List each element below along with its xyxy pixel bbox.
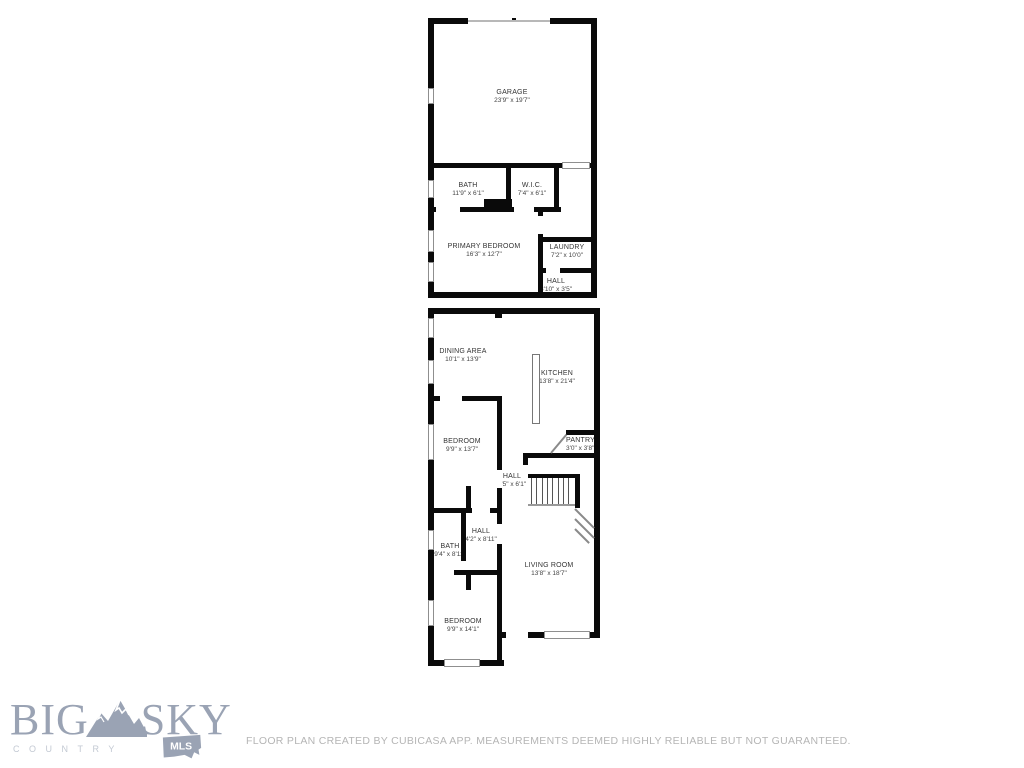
door-opening bbox=[436, 207, 460, 212]
logo-word-big: BIG bbox=[10, 698, 89, 742]
door-opening bbox=[440, 396, 462, 401]
stair-tread-line bbox=[552, 478, 553, 504]
window bbox=[444, 659, 480, 667]
svg-text:MLS: MLS bbox=[170, 742, 192, 753]
room-dims: 23'9" x 19'7" bbox=[467, 97, 557, 105]
room-name: W.I.C. bbox=[487, 181, 577, 190]
wall bbox=[523, 453, 528, 465]
room-name: KITCHEN bbox=[512, 369, 602, 378]
wall bbox=[495, 308, 502, 318]
room-label-living-room: LIVING ROOM 13'8" x 18'7" bbox=[504, 561, 594, 579]
logo-tagline: COUNTRY bbox=[13, 744, 124, 754]
room-dims: 7'2" x 10'0" bbox=[522, 252, 612, 260]
door-opening bbox=[472, 508, 490, 513]
door-opening bbox=[514, 207, 534, 212]
room-dims: 9'5" x 6'1" bbox=[467, 481, 557, 489]
room-name: PRIMARY BEDROOM bbox=[439, 242, 529, 251]
door-opening bbox=[538, 216, 543, 234]
room-name: LIVING ROOM bbox=[504, 561, 594, 570]
kitchen-island bbox=[532, 354, 540, 424]
pantry-door-line bbox=[550, 434, 567, 454]
window bbox=[428, 360, 434, 384]
room-label-primary-bedroom: PRIMARY BEDROOM 16'3" x 12'7" bbox=[439, 242, 529, 260]
mls-montana-badge: MLS bbox=[162, 734, 202, 761]
stair-winder-line bbox=[574, 508, 595, 529]
wall bbox=[428, 292, 597, 298]
door-opening bbox=[506, 632, 528, 638]
stair-tread-line bbox=[558, 478, 559, 504]
wall bbox=[428, 308, 600, 314]
window bbox=[428, 530, 434, 550]
wall bbox=[554, 163, 559, 212]
door-opening bbox=[434, 570, 454, 575]
room-label-kitchen: KITCHEN 13'8" x 21'4" bbox=[512, 369, 602, 387]
door-opening bbox=[546, 268, 560, 273]
room-label-laundry: LAUNDRY 7'2" x 10'0" bbox=[522, 243, 612, 261]
window bbox=[544, 631, 590, 639]
room-name: HALL bbox=[511, 277, 601, 286]
stair-tread-line bbox=[536, 478, 537, 504]
disclaimer-text: FLOOR PLAN CREATED BY CUBICASA APP. MEAS… bbox=[246, 735, 851, 747]
room-label-bath-lower: BATH 9'4" x 8'11" bbox=[405, 542, 495, 560]
room-label-garage: GARAGE 23'9" x 19'7" bbox=[467, 88, 557, 106]
stair-tread-line bbox=[542, 478, 543, 504]
room-dims: 16'3" x 12'7" bbox=[439, 251, 529, 259]
window bbox=[428, 262, 434, 282]
window bbox=[428, 424, 434, 460]
stair-edge-line bbox=[528, 504, 575, 506]
wall bbox=[461, 513, 466, 561]
wall bbox=[428, 18, 434, 298]
window bbox=[428, 600, 434, 626]
window bbox=[428, 318, 434, 338]
stair-tread-line bbox=[568, 478, 569, 504]
garage-door-line bbox=[468, 20, 550, 22]
floor-plan: GARAGE 23'9" x 19'7" BATH 11'9" x 6'1" W… bbox=[0, 0, 1024, 768]
wall bbox=[466, 486, 471, 508]
room-name: HALL bbox=[436, 527, 526, 536]
room-label-wic: W.I.C. 7'4" x 6'1" bbox=[487, 181, 577, 199]
room-name: LAUNDRY bbox=[522, 243, 612, 252]
wall bbox=[523, 453, 594, 458]
stair-tread-line bbox=[547, 478, 548, 504]
room-dims: 13'8" x 18'7" bbox=[504, 570, 594, 578]
room-dims: 7'4" x 6'1" bbox=[487, 190, 577, 198]
room-name: GARAGE bbox=[467, 88, 557, 97]
wall bbox=[575, 474, 580, 508]
wall bbox=[428, 18, 468, 24]
window bbox=[428, 180, 434, 198]
wall bbox=[591, 18, 597, 298]
big-sky-mls-logo: BIG SKY COUNTRY MLS bbox=[10, 698, 220, 762]
room-dims: 13'8" x 21'4" bbox=[512, 378, 602, 386]
door-opening bbox=[497, 524, 502, 544]
mountain-icon bbox=[82, 697, 148, 739]
stair-tread-line bbox=[563, 478, 564, 504]
wall bbox=[594, 308, 600, 638]
window bbox=[562, 162, 590, 169]
room-name: BATH bbox=[405, 542, 495, 551]
stair-winder-line bbox=[574, 518, 595, 539]
wall bbox=[550, 18, 597, 24]
wall bbox=[566, 430, 594, 435]
wall bbox=[543, 237, 591, 242]
wall bbox=[466, 570, 471, 590]
room-dims: 9'4" x 8'11" bbox=[405, 551, 495, 559]
window bbox=[428, 88, 434, 104]
door-opening bbox=[497, 470, 502, 488]
window bbox=[428, 230, 434, 252]
wall bbox=[484, 199, 512, 207]
floor-plan-page: GARAGE 23'9" x 19'7" BATH 11'9" x 6'1" W… bbox=[0, 0, 1024, 768]
stair-tread-line bbox=[531, 478, 532, 504]
